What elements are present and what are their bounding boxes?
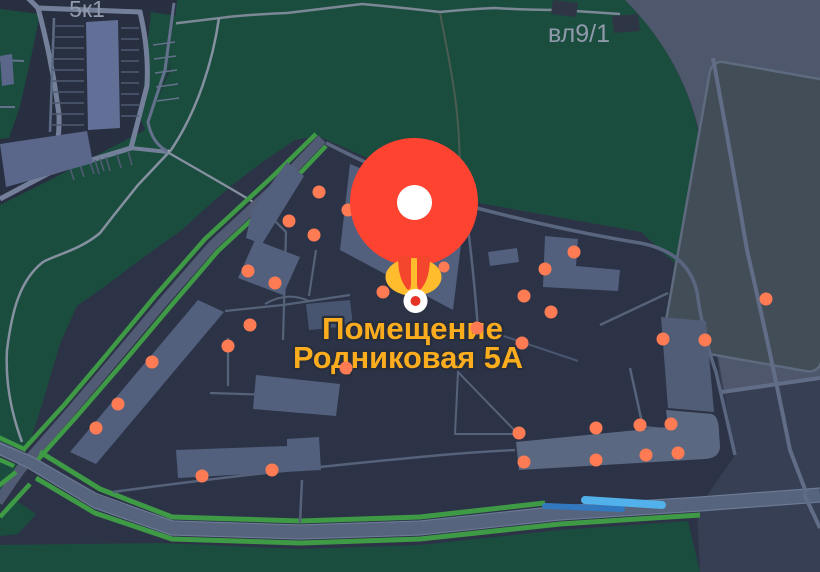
svg-text:Родниковая 5А: Родниковая 5А [293,340,523,375]
svg-text:вл9/1: вл9/1 [548,20,610,48]
svg-text:5к1: 5к1 [69,0,105,22]
